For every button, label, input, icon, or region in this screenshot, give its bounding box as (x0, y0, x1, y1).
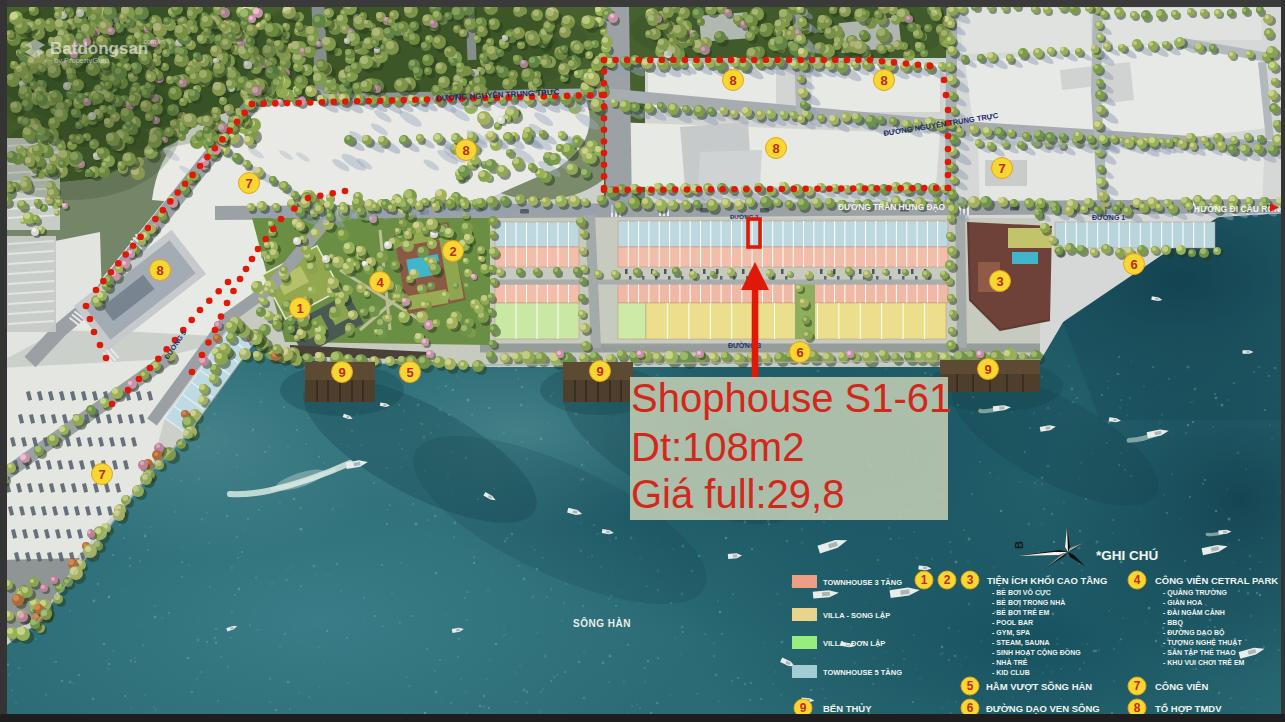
svg-text:Shophouse S1-61: Shophouse S1-61 (631, 376, 951, 420)
svg-text:VILLA - SONG LẬP: VILLA - SONG LẬP (823, 611, 890, 620)
svg-text:TIỆN ÍCH KHỐI CAO TẦNG: TIỆN ÍCH KHỐI CAO TẦNG (987, 575, 1107, 586)
svg-text:- GIÀN HOA: - GIÀN HOA (1163, 598, 1202, 606)
svg-text:7: 7 (98, 467, 105, 482)
svg-text:3: 3 (996, 274, 1003, 289)
svg-text:- BỂ BƠI TRẺ EM: - BỂ BƠI TRẺ EM (992, 608, 1049, 616)
svg-text:9: 9 (596, 364, 603, 379)
svg-text:- KID CLUB: - KID CLUB (992, 669, 1030, 676)
svg-text:B: B (1013, 541, 1025, 549)
svg-text:.com.vn: .com.vn (142, 38, 165, 45)
svg-text:CÔNG VIÊN CETRAL PARK: CÔNG VIÊN CETRAL PARK (1155, 575, 1278, 586)
svg-text:- ĐÀI NGẮM CẢNH: - ĐÀI NGẮM CẢNH (1163, 608, 1225, 616)
svg-text:9: 9 (338, 365, 345, 380)
svg-text:- TƯỢNG NGHỆ THUẬT: - TƯỢNG NGHỆ THUẬT (1163, 638, 1242, 646)
svg-text:8: 8 (156, 263, 163, 278)
svg-text:Batdongsan.com.vn: Batdongsan.com.vn (604, 336, 701, 348)
svg-text:TOWNHOUSE 3 TẦNG: TOWNHOUSE 3 TẦNG (823, 577, 902, 587)
svg-text:- NHÀ TRẺ: - NHÀ TRẺ (992, 658, 1028, 666)
svg-text:6: 6 (796, 345, 803, 360)
svg-text:- GYM, SPA: - GYM, SPA (992, 629, 1030, 637)
svg-text:- BỂ BƠI TRONG NHÀ: - BỂ BƠI TRONG NHÀ (992, 598, 1065, 606)
svg-text:- BBQ: - BBQ (1163, 619, 1183, 627)
svg-text:8: 8 (729, 73, 736, 88)
svg-text:2: 2 (944, 573, 951, 587)
svg-text:4: 4 (376, 275, 384, 290)
svg-text:ĐƯỜNG TRẦN HƯNG ĐẠO: ĐƯỜNG TRẦN HƯNG ĐẠO (838, 201, 946, 212)
svg-text:BẾN THỦY: BẾN THỦY (823, 703, 872, 714)
svg-text:9: 9 (984, 362, 991, 377)
svg-text:TOWNHOUSE 5 TẦNG: TOWNHOUSE 5 TẦNG (823, 667, 902, 677)
svg-text:8: 8 (772, 141, 779, 156)
svg-text:VILLA - ĐƠN LẬP: VILLA - ĐƠN LẬP (823, 639, 885, 648)
svg-text:- QUẢNG TRƯỜNG: - QUẢNG TRƯỜNG (1163, 588, 1227, 597)
svg-text:by PropertyGuru: by PropertyGuru (54, 56, 109, 65)
svg-text:9: 9 (800, 701, 807, 715)
svg-text:4: 4 (1134, 573, 1141, 587)
svg-text:- KHU VUI CHƠI TRẺ EM: - KHU VUI CHƠI TRẺ EM (1163, 658, 1245, 666)
svg-text:6: 6 (1130, 257, 1137, 272)
svg-text:8: 8 (1134, 701, 1141, 715)
svg-text:6: 6 (967, 701, 974, 715)
svg-text:Giá full:29,8: Giá full:29,8 (631, 472, 844, 516)
svg-text:Dt:108m2: Dt:108m2 (631, 425, 804, 469)
svg-text:- SÂN TẬP THỂ THAO: - SÂN TẬP THỂ THAO (1163, 648, 1236, 656)
svg-text:*GHI CHÚ: *GHI CHÚ (1096, 548, 1158, 563)
svg-text:ĐƯỜNG 1: ĐƯỜNG 1 (1092, 213, 1125, 221)
svg-text:CÔNG VIÊN: CÔNG VIÊN (1155, 681, 1208, 692)
svg-text:8: 8 (462, 143, 469, 158)
svg-text:8: 8 (880, 73, 887, 88)
svg-text:5: 5 (406, 365, 413, 380)
svg-text:7: 7 (245, 176, 252, 191)
svg-text:SÔNG HÀN: SÔNG HÀN (573, 617, 631, 629)
svg-text:5: 5 (967, 679, 974, 693)
svg-text:7: 7 (998, 161, 1005, 176)
svg-text:- POOL BAR: - POOL BAR (992, 619, 1033, 626)
svg-text:3: 3 (967, 573, 974, 587)
svg-text:1: 1 (296, 301, 303, 316)
svg-text:- SINH HOẠT CỘNG ĐỒNG: - SINH HOẠT CỘNG ĐỒNG (992, 647, 1081, 656)
svg-text:7: 7 (1134, 679, 1141, 693)
svg-text:2: 2 (449, 244, 456, 259)
svg-text:1: 1 (921, 573, 928, 587)
svg-text:ĐƯỜNG DẠO VEN SÔNG: ĐƯỜNG DẠO VEN SÔNG (986, 703, 1100, 714)
svg-text:- ĐƯỜNG DẠO BỘ: - ĐƯỜNG DẠO BỘ (1163, 628, 1225, 636)
svg-text:HẦM VƯỢT SÔNG HÀN: HẦM VƯỢT SÔNG HÀN (986, 681, 1092, 692)
svg-text:- STEAM, SAUNA: - STEAM, SAUNA (992, 639, 1050, 647)
svg-text:- BỂ BƠI VÔ CỰC: - BỂ BƠI VÔ CỰC (992, 588, 1051, 596)
svg-text:TỔ HỢP TMDV: TỔ HỢP TMDV (1155, 703, 1222, 714)
